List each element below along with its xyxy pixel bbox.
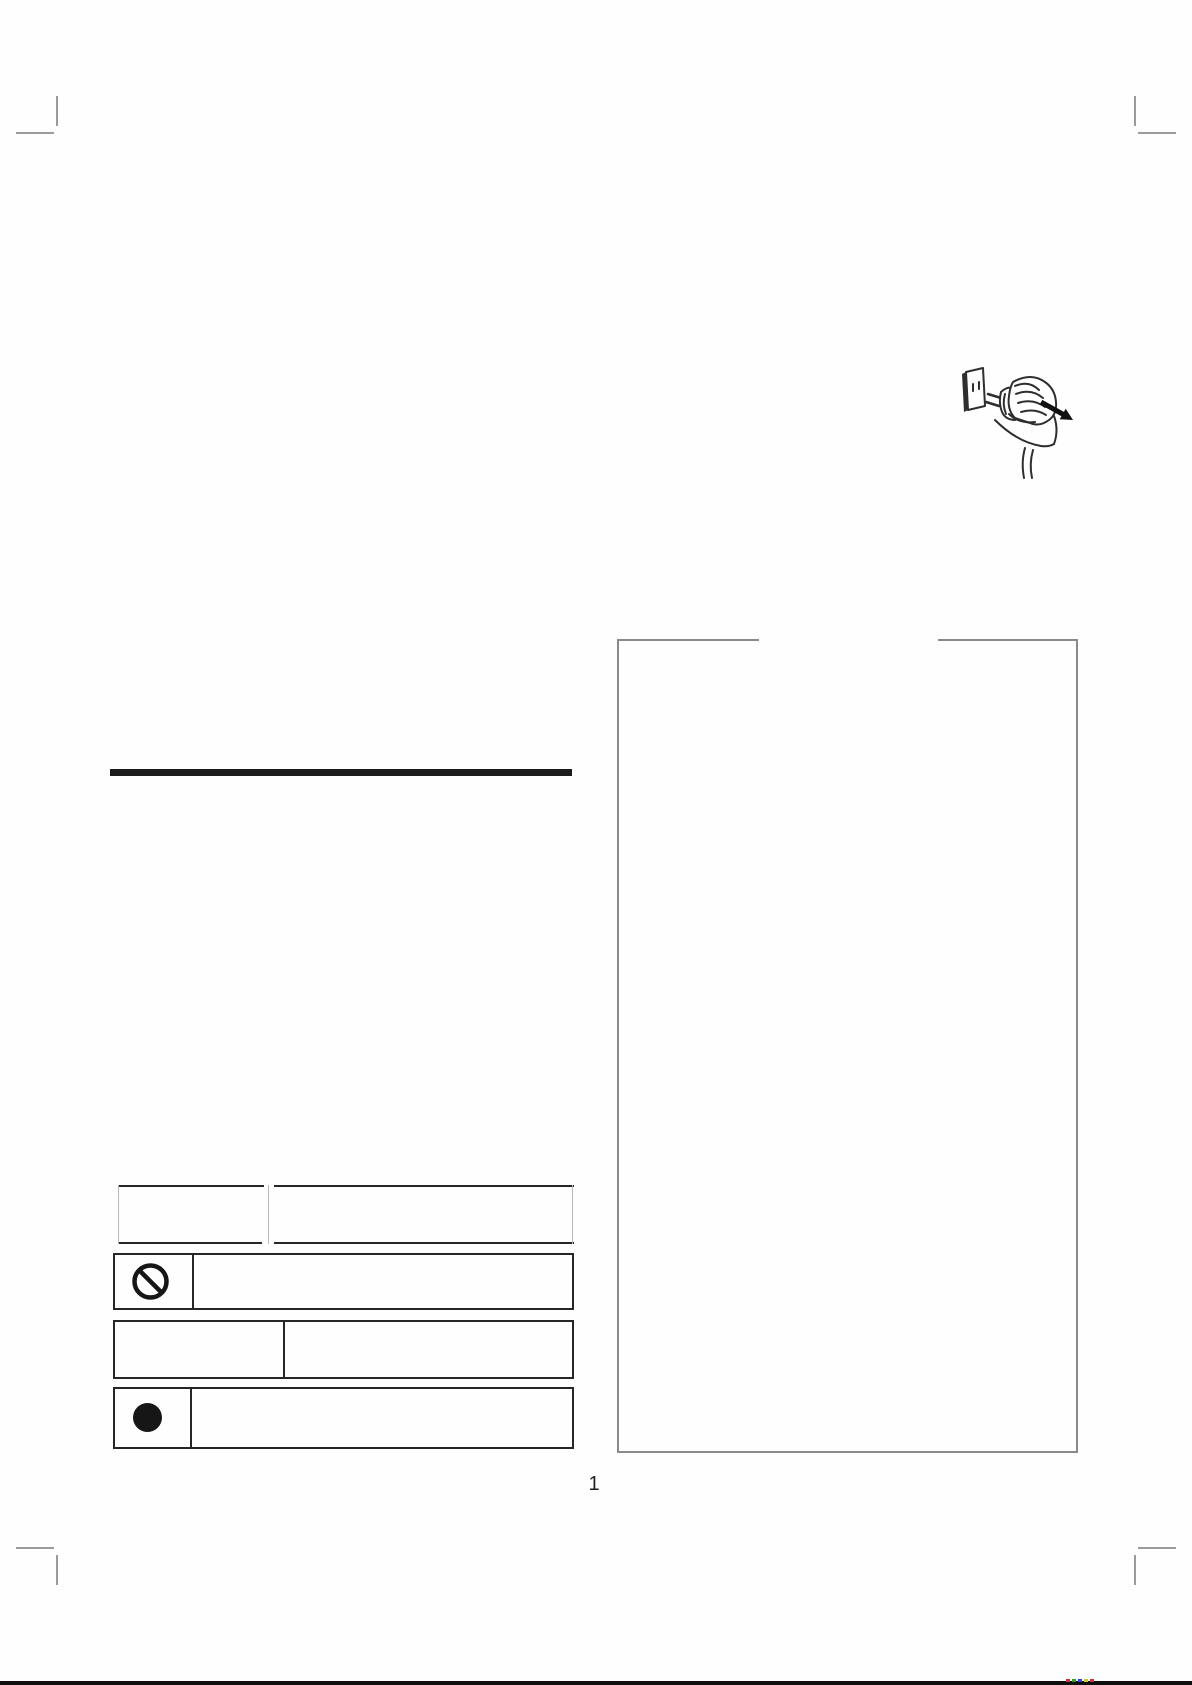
safety-row-divided-divider — [283, 1322, 285, 1377]
crop-mark-bottom-right-vertical — [1134, 1555, 1136, 1585]
crop-mark-top-right-horizontal — [1138, 132, 1176, 134]
safety-row1-divider — [268, 1185, 269, 1244]
mandatory-filled-circle-icon — [133, 1403, 162, 1432]
registration-mark — [1078, 1679, 1082, 1682]
crop-mark-top-left-vertical — [56, 96, 58, 126]
section-rule — [110, 769, 572, 776]
safety-row-divided — [113, 1320, 574, 1379]
safety-row1-top-border-right — [274, 1185, 574, 1187]
safety-row1-top-border-left — [118, 1185, 264, 1187]
prohibition-icon — [128, 1259, 173, 1304]
safety-row1-bottom-border-left — [118, 1242, 262, 1244]
crop-mark-top-left-horizontal — [16, 132, 54, 134]
crop-mark-bottom-left-vertical — [56, 1555, 58, 1585]
registration-mark — [1066, 1679, 1070, 1682]
safety-row-mandatory-divider — [190, 1389, 192, 1447]
crop-mark-top-right-vertical — [1134, 96, 1136, 126]
registration-mark — [1090, 1679, 1094, 1682]
content-frame-top-right-segment — [938, 639, 1078, 641]
safety-row-prohibition — [113, 1253, 574, 1310]
registration-mark — [1072, 1679, 1076, 1682]
crop-mark-bottom-right-horizontal — [1138, 1547, 1176, 1549]
crop-mark-bottom-left-horizontal — [16, 1547, 54, 1549]
scanned-manual-page: 1 — [0, 0, 1192, 1685]
safety-row1-bottom-border-right — [274, 1242, 574, 1244]
content-frame-bottom-border — [617, 1451, 1078, 1453]
unplug-illustration — [945, 330, 1095, 480]
scan-edge-strip — [0, 1681, 1192, 1685]
content-frame-right-border — [1076, 639, 1078, 1453]
content-frame-top-left-segment — [617, 639, 759, 641]
registration-mark — [1084, 1679, 1088, 1682]
safety-row-prohibition-divider — [192, 1255, 194, 1308]
safety-row1-right-border — [572, 1185, 573, 1244]
safety-row1-left-border — [118, 1185, 119, 1244]
safety-row-mandatory — [113, 1387, 574, 1449]
content-frame-left-border — [617, 639, 619, 1453]
page-number: 1 — [584, 1474, 604, 1494]
